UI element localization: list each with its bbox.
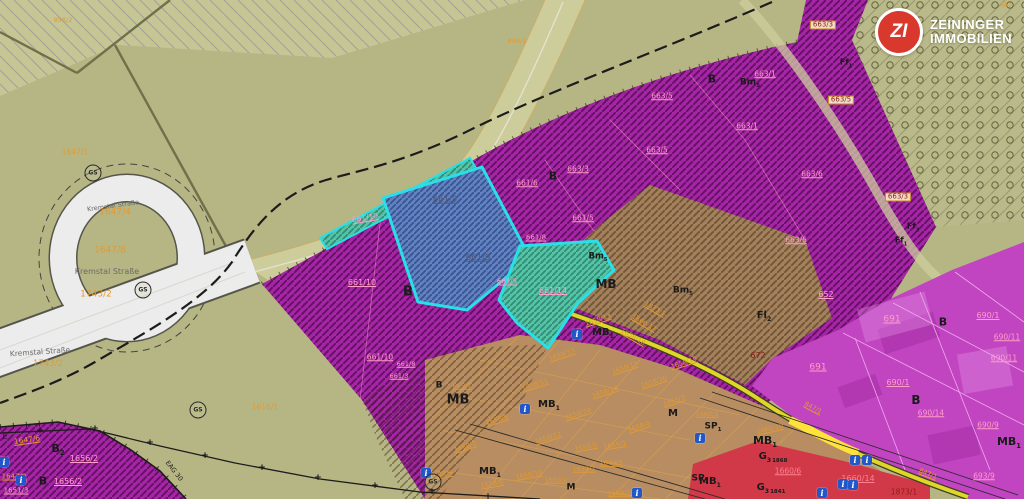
- logo-zi-icon: ZI: [875, 8, 923, 56]
- logo-text: ZEININGER IMMOBILIEN: [930, 18, 1012, 46]
- zoning-map-canvas: [0, 0, 1024, 499]
- zoning-map[interactable]: 858/2864/16671647/1Kremstal Straße1647/4…: [0, 0, 1024, 499]
- logo: ZI ZEININGER IMMOBILIEN: [875, 8, 1012, 56]
